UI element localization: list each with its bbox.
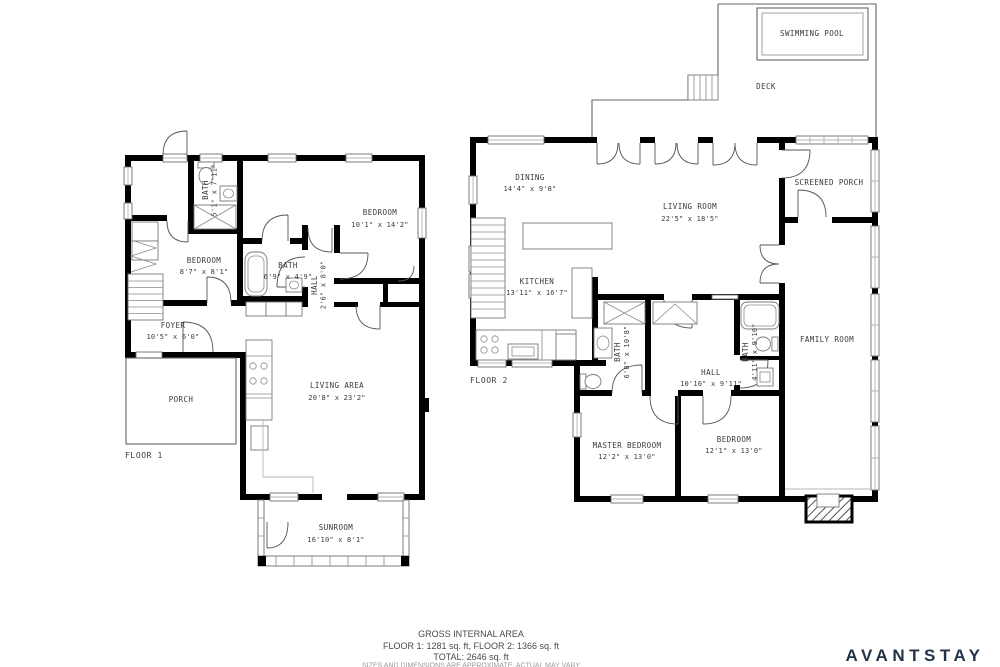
floor-plan-page: BATH 5'1" x 7'11" BEDROOM 8'7" x 8'1" BE… bbox=[0, 0, 1000, 667]
kitchen-counter bbox=[246, 340, 272, 450]
room-label: SUNROOM bbox=[319, 523, 353, 532]
room-label: KITCHEN bbox=[520, 277, 554, 286]
room-dims: 16'10" x 8'1" bbox=[307, 536, 364, 544]
floor-transition-line bbox=[263, 420, 313, 493]
floor1-title: FLOOR 1 bbox=[125, 451, 163, 460]
total-area: TOTAL: 2646 sq. ft bbox=[433, 652, 509, 662]
room-dims: 22'5" x 18'5" bbox=[661, 215, 718, 223]
disclaimer: SIZES AND DIMENSIONS ARE APPROXIMATE, AC… bbox=[362, 663, 580, 667]
floor2-title: FLOOR 2 bbox=[470, 376, 508, 385]
room-label: HALL bbox=[701, 368, 721, 377]
room-label: HALL bbox=[310, 275, 319, 295]
pantry-counter bbox=[572, 268, 592, 318]
washer-dryer-icon bbox=[604, 302, 645, 324]
staircase bbox=[128, 274, 163, 320]
room-label: BEDROOM bbox=[187, 256, 221, 265]
sunroom-structure bbox=[258, 500, 409, 566]
floor-areas: FLOOR 1: 1281 sq. ft, FLOOR 2: 1366 sq. … bbox=[383, 641, 560, 651]
room-label: BATH bbox=[613, 342, 622, 362]
room-dims: 6'9" x 4'9" bbox=[264, 273, 313, 281]
room-label: BEDROOM bbox=[363, 208, 397, 217]
floor-plan-canvas: BATH 5'1" x 7'11" BEDROOM 8'7" x 8'1" BE… bbox=[0, 0, 1000, 667]
room-dims: 2'6" x 8'0" bbox=[320, 261, 328, 310]
hall-closet bbox=[653, 302, 697, 324]
floor2-plan: SWIMMING POOL DECK DINING 14'4" x 9'8" L… bbox=[469, 4, 879, 522]
room-label: BATH bbox=[278, 261, 298, 270]
room-dims: 5'1" x 7'11" bbox=[211, 164, 219, 217]
room-label: PORCH bbox=[169, 395, 194, 404]
room-label: DECK bbox=[756, 82, 776, 91]
floor1-fixtures bbox=[128, 162, 313, 493]
room-label: MASTER BEDROOM bbox=[593, 441, 662, 450]
room-dims: 10'1" x 14'2" bbox=[351, 221, 408, 229]
room-dims: 10'10" x 9'11" bbox=[680, 380, 742, 388]
room-label: FOYER bbox=[161, 321, 186, 330]
toilet-icon bbox=[580, 374, 601, 389]
room-dims: 12'2" x 13'0" bbox=[598, 453, 655, 461]
closet-shelves bbox=[131, 222, 158, 272]
kitchen-counter bbox=[476, 330, 576, 360]
room-label: DINING bbox=[515, 173, 545, 182]
room-label: FAMILY ROOM bbox=[800, 335, 854, 344]
room-dims: 14'4" x 9'8" bbox=[504, 185, 557, 193]
linen-closet bbox=[757, 368, 773, 386]
room-label: BATH bbox=[201, 180, 210, 200]
room-dims: 20'8" x 23'2" bbox=[308, 394, 365, 402]
room-dims: 8'7" x 8'1" bbox=[180, 268, 229, 276]
footer: GROSS INTERNAL AREA FLOOR 1: 1281 sq. ft… bbox=[362, 629, 985, 667]
room-dims: 12'1" x 13'0" bbox=[705, 447, 762, 455]
avantstay-logo: AVANTSTAY bbox=[845, 646, 984, 665]
room-dims: 13'11" x 16'7" bbox=[506, 289, 568, 297]
room-label: SWIMMING POOL bbox=[780, 29, 844, 38]
deck-outline bbox=[592, 4, 876, 137]
room-label: BEDROOM bbox=[717, 435, 751, 444]
kitchen-island bbox=[523, 223, 612, 249]
room-label: SCREENED PORCH bbox=[795, 178, 864, 187]
vanity-sink-icon bbox=[594, 328, 612, 358]
fireplace bbox=[806, 494, 852, 522]
floor1-plan: BATH 5'1" x 7'11" BEDROOM 8'7" x 8'1" BE… bbox=[124, 131, 429, 566]
sink-icon bbox=[220, 186, 237, 201]
room-dims: 10'5" x 6'0" bbox=[147, 333, 200, 341]
staircase bbox=[471, 218, 505, 318]
deck-stairs bbox=[688, 75, 718, 100]
room-label: LIVING AREA bbox=[310, 381, 364, 390]
gross-area-title: GROSS INTERNAL AREA bbox=[418, 629, 524, 639]
room-dims: 4'11" x 9'10" bbox=[751, 323, 759, 380]
room-label: BATH bbox=[741, 342, 750, 362]
bathtub-icon bbox=[741, 302, 779, 329]
room-dims: 6'0" x 10'8" bbox=[623, 326, 631, 379]
cabinet-row bbox=[246, 302, 302, 316]
room-label: LIVING ROOM bbox=[663, 202, 717, 211]
floor2-fixtures bbox=[471, 218, 871, 522]
